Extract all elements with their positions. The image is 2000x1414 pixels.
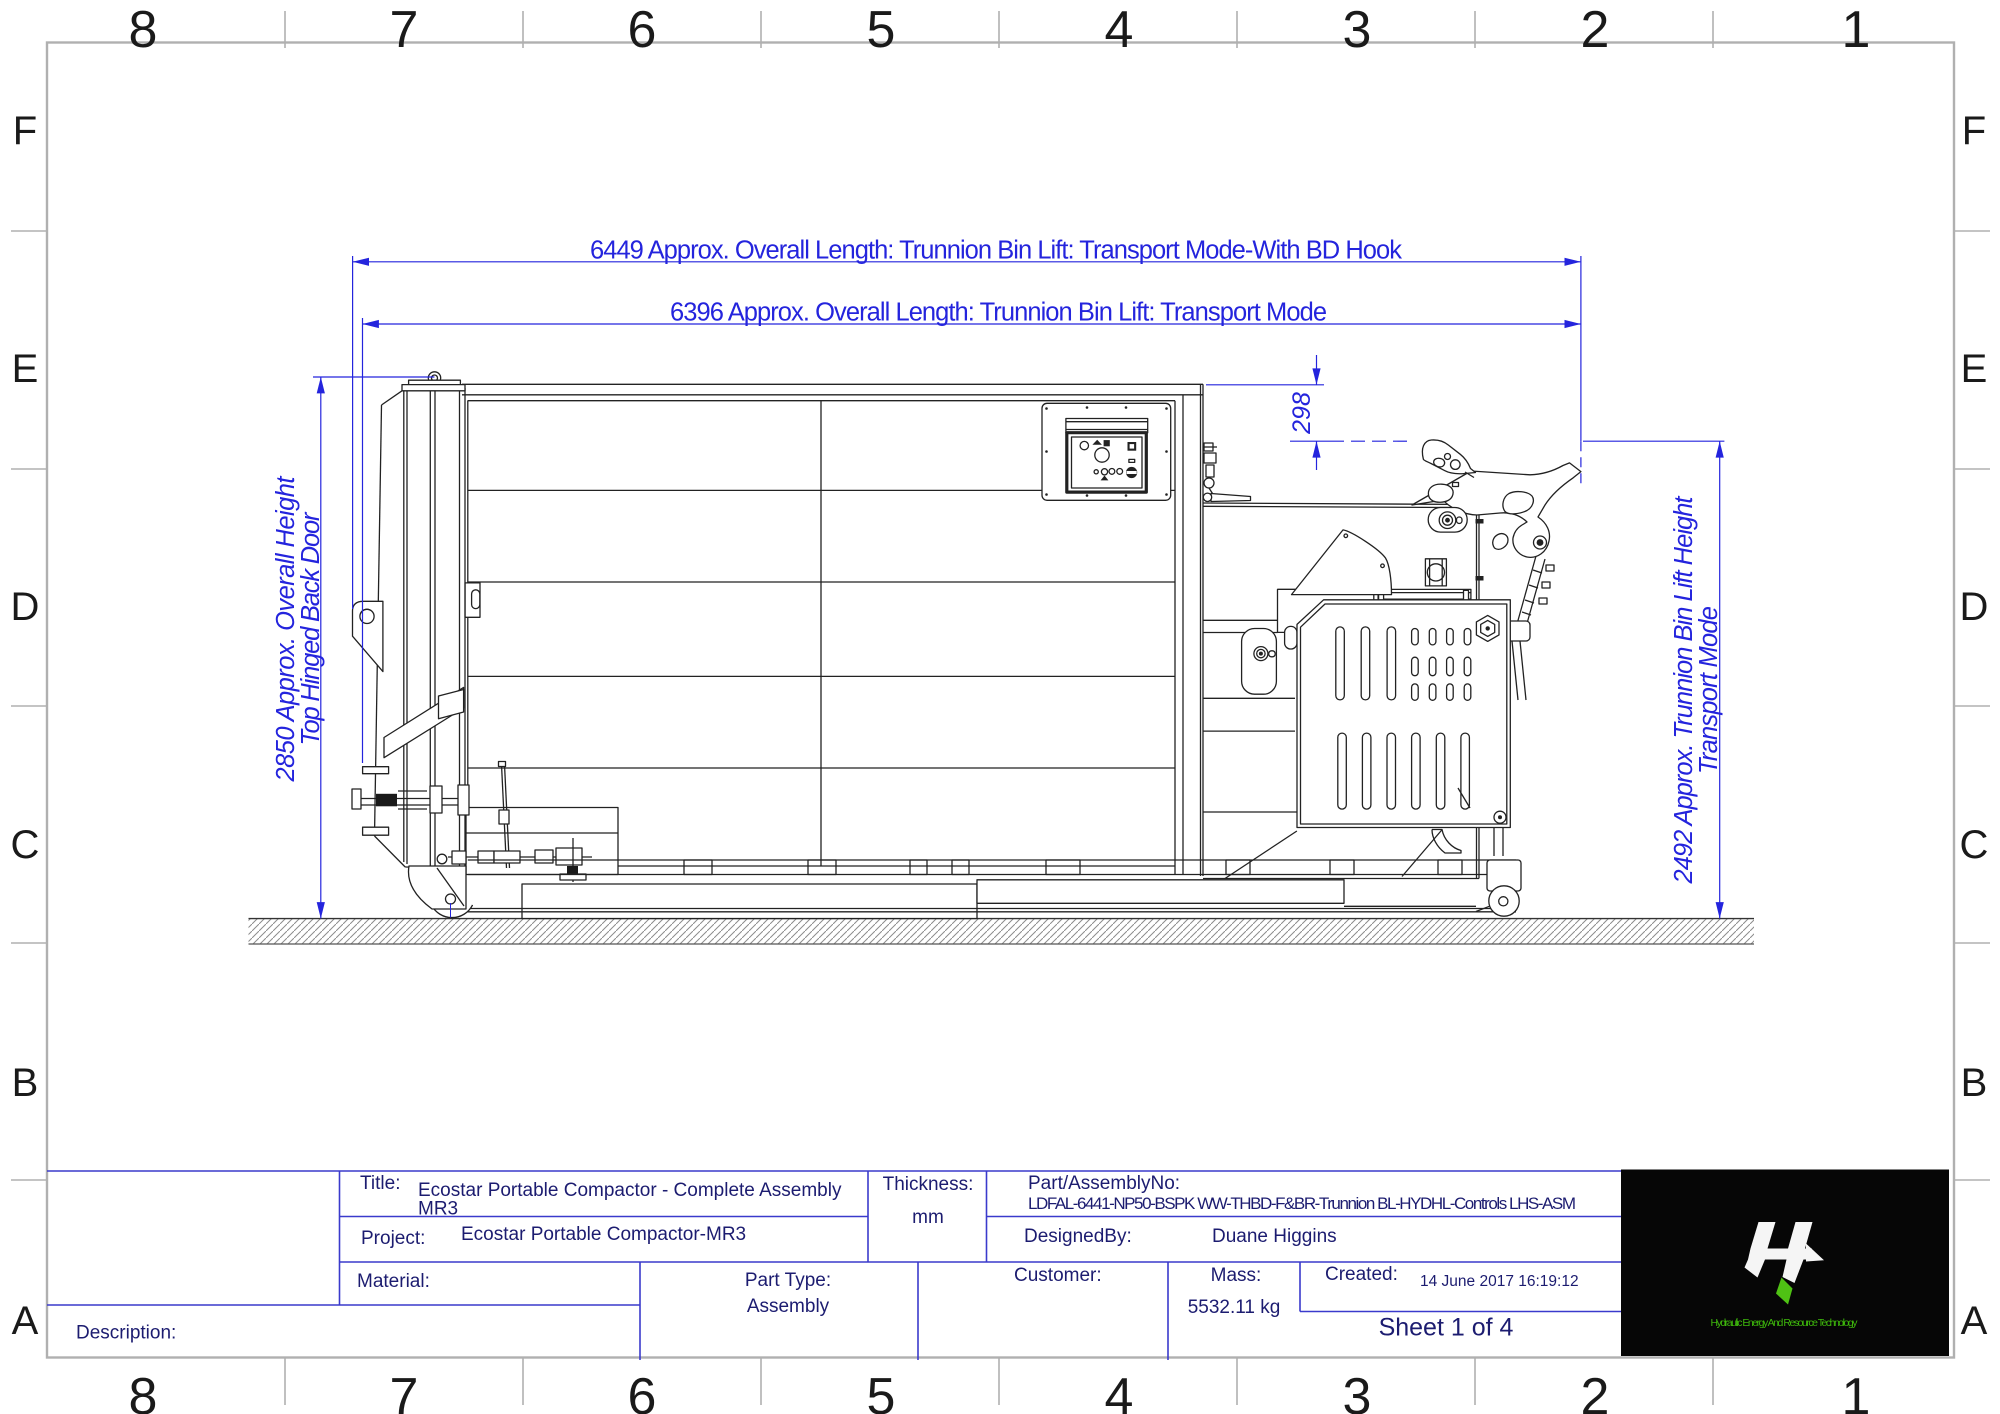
svg-text:Description:: Description: — [76, 1323, 176, 1344]
svg-text:3: 3 — [1343, 1, 1372, 59]
svg-text:D: D — [11, 585, 40, 629]
svg-text:5: 5 — [867, 1368, 896, 1414]
svg-text:Assembly: Assembly — [747, 1296, 830, 1317]
svg-text:Top Hinged Back Door: Top Hinged Back Door — [297, 511, 325, 746]
svg-text:8: 8 — [129, 1, 158, 59]
svg-text:Title:: Title: — [360, 1173, 400, 1194]
svg-text:8: 8 — [129, 1368, 158, 1414]
svg-text:C: C — [11, 823, 40, 867]
svg-text:Transport Mode: Transport Mode — [1695, 606, 1723, 774]
svg-text:4: 4 — [1105, 1, 1134, 59]
svg-text:Part Type:: Part Type: — [745, 1270, 831, 1291]
svg-text:7: 7 — [390, 1, 419, 59]
svg-text:1: 1 — [1842, 1, 1871, 59]
svg-text:B: B — [12, 1061, 39, 1105]
svg-text:2: 2 — [1581, 1368, 1610, 1414]
svg-text:3: 3 — [1343, 1368, 1372, 1414]
svg-text:14 June 2017 16:19:12: 14 June 2017 16:19:12 — [1420, 1273, 1579, 1290]
svg-text:Mass:: Mass: — [1211, 1265, 1262, 1286]
svg-text:MR3: MR3 — [418, 1199, 458, 1220]
svg-text:4: 4 — [1105, 1368, 1134, 1414]
svg-text:E: E — [1961, 347, 1988, 391]
svg-text:6396 Approx. Overall Length: T: 6396 Approx. Overall Length: Trunnion Bi… — [670, 299, 1327, 327]
svg-text:Material:: Material: — [357, 1271, 430, 1292]
svg-text:Project:: Project: — [361, 1228, 425, 1249]
svg-text:A: A — [12, 1299, 39, 1343]
svg-text:298: 298 — [1288, 392, 1316, 435]
svg-text:DesignedBy:: DesignedBy: — [1024, 1226, 1132, 1247]
svg-text:A: A — [1961, 1299, 1988, 1343]
svg-text:F: F — [1962, 109, 1986, 153]
svg-text:Part/AssemblyNo:: Part/AssemblyNo: — [1028, 1173, 1180, 1194]
svg-text:6449 Approx. Overall Length: T: 6449 Approx. Overall Length: Trunnion Bi… — [590, 237, 1402, 265]
svg-text:2850 Approx. Overall Height: 2850 Approx. Overall Height — [272, 476, 300, 783]
svg-text:mm: mm — [912, 1207, 944, 1228]
svg-text:Created:: Created: — [1325, 1264, 1398, 1285]
svg-text:E: E — [12, 347, 39, 391]
svg-text:Sheet 1 of 4: Sheet 1 of 4 — [1379, 1314, 1514, 1342]
svg-text:2: 2 — [1581, 1, 1610, 59]
svg-text:Ecostar Portable Compactor - C: Ecostar Portable Compactor - Complete As… — [418, 1180, 842, 1201]
svg-text:Duane Higgins: Duane Higgins — [1212, 1226, 1337, 1247]
svg-text:5: 5 — [867, 1, 896, 59]
svg-text:B: B — [1961, 1061, 1988, 1105]
svg-text:6: 6 — [628, 1, 657, 59]
svg-text:5532.11 kg: 5532.11 kg — [1188, 1297, 1281, 1318]
svg-text:D: D — [1960, 585, 1989, 629]
svg-text:7: 7 — [390, 1368, 419, 1414]
svg-text:1: 1 — [1842, 1368, 1871, 1414]
svg-text:Customer:: Customer: — [1014, 1265, 1102, 1286]
svg-text:6: 6 — [628, 1368, 657, 1414]
svg-text:Hydraulic Energy And Resource: Hydraulic Energy And Resource Technology — [1711, 1317, 1859, 1329]
svg-text:Thickness:: Thickness: — [883, 1174, 974, 1195]
svg-text:LDFAL-6441-NP50-BSPK WW-THBD-F: LDFAL-6441-NP50-BSPK WW-THBD-F&BR-Trunni… — [1028, 1194, 1576, 1213]
svg-text:2492 Approx. Trunnion Bin Lift: 2492 Approx. Trunnion Bin Lift Height — [1670, 496, 1698, 885]
svg-text:F: F — [13, 109, 37, 153]
svg-text:C: C — [1960, 823, 1989, 867]
svg-text:Ecostar Portable Compactor-MR3: Ecostar Portable Compactor-MR3 — [461, 1224, 746, 1245]
